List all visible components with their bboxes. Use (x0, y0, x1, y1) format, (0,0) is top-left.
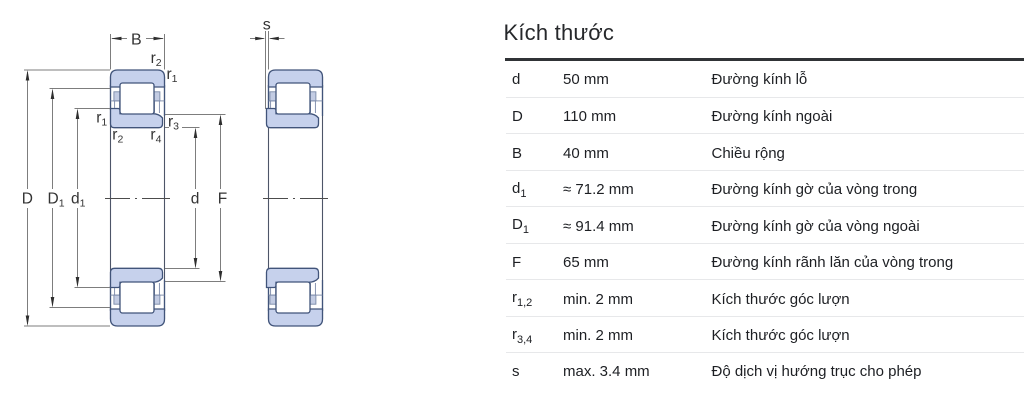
svg-text:d1: d1 (71, 191, 86, 210)
svg-text:F: F (218, 191, 227, 208)
svg-text:s: s (263, 17, 271, 34)
svg-text:d: d (191, 191, 200, 208)
svg-text:r2: r2 (151, 50, 162, 69)
svg-text:B: B (131, 31, 142, 48)
svg-text:r3: r3 (168, 114, 179, 133)
svg-text:r1: r1 (167, 66, 178, 85)
svg-text:r1: r1 (96, 110, 107, 129)
svg-text:D1: D1 (48, 191, 65, 210)
svg-text:D: D (22, 191, 33, 208)
